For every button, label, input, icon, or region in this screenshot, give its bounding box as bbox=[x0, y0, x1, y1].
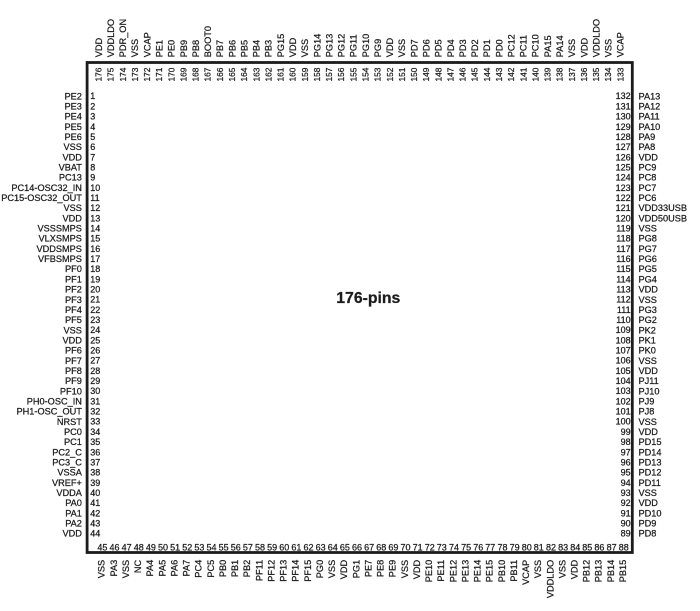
svg-text:PA13: PA13 bbox=[639, 91, 661, 101]
svg-text:13: 13 bbox=[90, 213, 100, 223]
svg-text:116: 116 bbox=[616, 254, 630, 264]
svg-text:PE10: PE10 bbox=[424, 560, 434, 582]
svg-text:PA12: PA12 bbox=[639, 102, 661, 112]
svg-text:PC14-OSC32_IN: PC14-OSC32_IN bbox=[11, 183, 81, 193]
svg-text:51: 51 bbox=[170, 543, 180, 553]
svg-text:24: 24 bbox=[90, 325, 100, 335]
svg-text:95: 95 bbox=[621, 468, 631, 478]
svg-text:VSS: VSS bbox=[639, 295, 657, 305]
svg-text:104: 104 bbox=[616, 376, 631, 386]
svg-text:PC5: PC5 bbox=[206, 560, 216, 578]
svg-text:10: 10 bbox=[90, 183, 100, 193]
svg-text:18: 18 bbox=[90, 264, 100, 274]
svg-text:137: 137 bbox=[567, 67, 577, 81]
svg-text:PD2: PD2 bbox=[470, 39, 480, 57]
svg-text:PB9: PB9 bbox=[179, 40, 189, 57]
svg-text:PE2: PE2 bbox=[65, 91, 82, 101]
svg-text:79: 79 bbox=[510, 543, 520, 553]
svg-text:VSS: VSS bbox=[327, 560, 337, 578]
svg-text:146: 146 bbox=[458, 67, 468, 81]
svg-text:117: 117 bbox=[616, 244, 630, 254]
svg-text:22: 22 bbox=[90, 305, 100, 315]
svg-text:PB4: PB4 bbox=[252, 40, 262, 57]
svg-text:PB3: PB3 bbox=[264, 40, 274, 57]
svg-text:115: 115 bbox=[616, 264, 630, 274]
svg-text:PK2: PK2 bbox=[639, 325, 656, 335]
svg-text:87: 87 bbox=[607, 543, 617, 553]
svg-text:56: 56 bbox=[231, 543, 241, 553]
svg-text:PF0: PF0 bbox=[65, 264, 82, 274]
svg-text:PB1: PB1 bbox=[230, 560, 240, 577]
svg-text:174: 174 bbox=[118, 67, 128, 81]
svg-text:PF2: PF2 bbox=[65, 285, 82, 295]
svg-text:PG5: PG5 bbox=[639, 264, 657, 274]
svg-text:41: 41 bbox=[90, 498, 100, 508]
svg-text:PC11: PC11 bbox=[519, 35, 529, 57]
svg-text:57: 57 bbox=[243, 543, 253, 553]
svg-text:131: 131 bbox=[616, 101, 631, 111]
svg-text:59: 59 bbox=[267, 543, 277, 553]
svg-text:PC0: PC0 bbox=[64, 427, 82, 437]
svg-text:PB5: PB5 bbox=[240, 40, 250, 57]
svg-text:PC7: PC7 bbox=[639, 183, 657, 193]
svg-text:76: 76 bbox=[473, 543, 483, 553]
svg-text:173: 173 bbox=[130, 67, 140, 81]
svg-text:120: 120 bbox=[616, 213, 631, 223]
svg-text:158: 158 bbox=[312, 67, 322, 81]
svg-text:VSS: VSS bbox=[300, 39, 310, 57]
svg-text:84: 84 bbox=[570, 543, 580, 553]
svg-text:80: 80 bbox=[522, 543, 532, 553]
svg-text:VDD: VDD bbox=[339, 559, 349, 579]
svg-text:161: 161 bbox=[276, 67, 286, 81]
svg-text:119: 119 bbox=[616, 224, 630, 234]
svg-text:PJ11: PJ11 bbox=[639, 376, 659, 386]
svg-text:PA1: PA1 bbox=[65, 508, 82, 518]
svg-text:PG4: PG4 bbox=[639, 274, 657, 284]
svg-text:66: 66 bbox=[352, 543, 362, 553]
svg-text:11: 11 bbox=[90, 193, 99, 203]
svg-text:123: 123 bbox=[616, 183, 631, 193]
svg-text:14: 14 bbox=[90, 224, 100, 234]
svg-text:PD6: PD6 bbox=[422, 39, 432, 57]
svg-text:100: 100 bbox=[616, 417, 631, 427]
svg-text:PF3: PF3 bbox=[65, 295, 82, 305]
svg-text:43: 43 bbox=[90, 519, 100, 529]
svg-text:PE6: PE6 bbox=[65, 132, 82, 142]
svg-text:PA8: PA8 bbox=[639, 142, 656, 152]
svg-text:176: 176 bbox=[94, 67, 104, 81]
svg-text:132: 132 bbox=[616, 91, 631, 101]
svg-text:VSS: VSS bbox=[639, 417, 657, 427]
svg-text:133: 133 bbox=[615, 67, 625, 81]
svg-text:125: 125 bbox=[616, 162, 631, 172]
svg-text:111: 111 bbox=[617, 305, 631, 315]
svg-text:PD7: PD7 bbox=[409, 39, 419, 57]
svg-text:25: 25 bbox=[90, 335, 100, 345]
svg-text:28: 28 bbox=[90, 366, 100, 376]
svg-text:PA4: PA4 bbox=[145, 560, 155, 577]
svg-text:PC6: PC6 bbox=[639, 193, 657, 203]
svg-text:71: 71 bbox=[413, 543, 423, 553]
svg-text:55: 55 bbox=[219, 543, 229, 553]
svg-text:61: 61 bbox=[291, 543, 301, 553]
svg-text:PE15: PE15 bbox=[485, 560, 495, 582]
svg-text:PF10: PF10 bbox=[60, 386, 82, 396]
svg-text:169: 169 bbox=[178, 67, 188, 81]
svg-text:PE5: PE5 bbox=[65, 122, 82, 132]
svg-text:PD14: PD14 bbox=[639, 447, 662, 457]
svg-text:165: 165 bbox=[227, 67, 237, 81]
svg-text:36: 36 bbox=[90, 447, 100, 457]
svg-text:VDD: VDD bbox=[62, 213, 82, 223]
svg-text:PB2: PB2 bbox=[242, 560, 252, 577]
svg-text:67: 67 bbox=[364, 543, 374, 553]
svg-text:PB11: PB11 bbox=[509, 560, 519, 582]
svg-text:PC13: PC13 bbox=[59, 173, 82, 183]
svg-text:VDD: VDD bbox=[639, 285, 659, 295]
svg-text:PF15: PF15 bbox=[303, 560, 313, 582]
svg-text:63: 63 bbox=[316, 543, 326, 553]
svg-text:92: 92 bbox=[621, 498, 631, 508]
svg-text:PD0: PD0 bbox=[494, 39, 504, 57]
svg-text:58: 58 bbox=[255, 543, 265, 553]
svg-text:108: 108 bbox=[616, 335, 631, 345]
svg-text:VDD50USB: VDD50USB bbox=[639, 213, 688, 223]
svg-text:96: 96 bbox=[621, 457, 631, 467]
svg-text:20: 20 bbox=[90, 285, 100, 295]
svg-text:VSS: VSS bbox=[604, 39, 614, 57]
svg-text:45: 45 bbox=[97, 543, 107, 553]
svg-text:85: 85 bbox=[582, 543, 592, 553]
svg-text:32: 32 bbox=[90, 407, 100, 417]
svg-text:PG7: PG7 bbox=[639, 244, 657, 254]
svg-text:PB6: PB6 bbox=[227, 40, 237, 57]
svg-text:153: 153 bbox=[373, 67, 383, 81]
svg-text:PK0: PK0 bbox=[639, 346, 656, 356]
svg-text:VSS: VSS bbox=[121, 560, 131, 578]
svg-text:PG12: PG12 bbox=[337, 34, 347, 58]
svg-text:VREF+: VREF+ bbox=[52, 478, 82, 488]
svg-text:PA6: PA6 bbox=[169, 560, 179, 577]
svg-text:154: 154 bbox=[361, 67, 371, 81]
svg-text:PD10: PD10 bbox=[639, 508, 662, 518]
svg-text:PA2: PA2 bbox=[65, 519, 82, 529]
svg-text:70: 70 bbox=[400, 543, 410, 553]
svg-text:136: 136 bbox=[579, 67, 589, 81]
svg-text:128: 128 bbox=[616, 132, 631, 142]
svg-text:PE12: PE12 bbox=[448, 560, 458, 582]
svg-text:48: 48 bbox=[134, 543, 144, 553]
svg-text:62: 62 bbox=[303, 543, 313, 553]
svg-text:121: 121 bbox=[616, 203, 631, 213]
svg-text:PG10: PG10 bbox=[361, 34, 371, 58]
svg-text:143: 143 bbox=[494, 67, 504, 81]
svg-text:150: 150 bbox=[409, 67, 419, 81]
svg-text:127: 127 bbox=[616, 142, 631, 152]
svg-text:PE9: PE9 bbox=[388, 560, 398, 577]
svg-text:PA14: PA14 bbox=[555, 35, 565, 57]
svg-text:PF8: PF8 bbox=[65, 366, 82, 376]
svg-text:VSS: VSS bbox=[639, 356, 657, 366]
svg-text:VDD: VDD bbox=[639, 498, 659, 508]
svg-text:175: 175 bbox=[106, 67, 116, 81]
svg-text:VDD: VDD bbox=[579, 37, 589, 57]
svg-text:47: 47 bbox=[122, 543, 132, 553]
svg-text:PG2: PG2 bbox=[639, 315, 657, 325]
svg-text:105: 105 bbox=[616, 366, 631, 376]
svg-text:VSS: VSS bbox=[64, 142, 82, 152]
svg-text:44: 44 bbox=[90, 529, 100, 539]
svg-text:VSS: VSS bbox=[533, 560, 543, 578]
svg-text:72: 72 bbox=[425, 543, 435, 553]
svg-text:3: 3 bbox=[90, 112, 95, 122]
svg-text:VSSA: VSSA bbox=[57, 468, 82, 478]
svg-text:160: 160 bbox=[288, 67, 298, 81]
svg-text:NRST: NRST bbox=[57, 417, 82, 427]
svg-text:148: 148 bbox=[433, 67, 443, 81]
svg-text:29: 29 bbox=[90, 376, 100, 386]
svg-text:PJ9: PJ9 bbox=[639, 397, 655, 407]
svg-text:PD9: PD9 bbox=[639, 519, 657, 529]
svg-text:VSS: VSS bbox=[64, 325, 82, 335]
svg-text:102: 102 bbox=[616, 396, 631, 406]
svg-text:30: 30 bbox=[90, 386, 100, 396]
svg-text:VSS: VSS bbox=[64, 203, 82, 213]
svg-text:PB12: PB12 bbox=[582, 560, 592, 582]
svg-text:1: 1 bbox=[90, 91, 95, 101]
svg-text:15: 15 bbox=[90, 234, 100, 244]
svg-text:VCAP: VCAP bbox=[521, 560, 531, 585]
svg-text:155: 155 bbox=[348, 67, 358, 81]
svg-text:VSS: VSS bbox=[397, 39, 407, 57]
svg-text:46: 46 bbox=[109, 543, 119, 553]
svg-text:114: 114 bbox=[616, 274, 630, 284]
svg-text:23: 23 bbox=[90, 315, 100, 325]
svg-text:PF13: PF13 bbox=[279, 560, 289, 582]
svg-text:VDD: VDD bbox=[570, 559, 580, 579]
svg-text:PJ8: PJ8 bbox=[639, 407, 655, 417]
svg-text:VSS: VSS bbox=[97, 560, 107, 578]
svg-text:VSS: VSS bbox=[567, 39, 577, 57]
svg-text:VDD: VDD bbox=[62, 152, 82, 162]
svg-text:PC15-OSC32_OUT: PC15-OSC32_OUT bbox=[1, 193, 82, 203]
svg-text:VDDLDO: VDDLDO bbox=[545, 560, 555, 598]
svg-text:PC2_C: PC2_C bbox=[52, 447, 82, 457]
svg-text:31: 31 bbox=[90, 396, 100, 406]
svg-text:176-pins: 176-pins bbox=[336, 290, 400, 307]
svg-text:PE7: PE7 bbox=[363, 560, 373, 577]
svg-text:VDD: VDD bbox=[94, 37, 104, 57]
svg-text:VDDLDO: VDDLDO bbox=[106, 19, 116, 57]
svg-text:PG3: PG3 bbox=[639, 305, 657, 315]
svg-text:164: 164 bbox=[239, 67, 249, 81]
svg-text:144: 144 bbox=[482, 67, 492, 81]
svg-text:VSS: VSS bbox=[639, 224, 657, 234]
svg-text:VDD: VDD bbox=[385, 37, 395, 57]
svg-text:27: 27 bbox=[90, 356, 100, 366]
svg-text:21: 21 bbox=[90, 295, 100, 305]
svg-text:16: 16 bbox=[90, 244, 100, 254]
svg-text:VSS: VSS bbox=[400, 560, 410, 578]
svg-text:49: 49 bbox=[146, 543, 156, 553]
svg-text:107: 107 bbox=[616, 346, 631, 356]
svg-text:PA5: PA5 bbox=[157, 560, 167, 577]
svg-text:PB15: PB15 bbox=[618, 560, 628, 582]
svg-text:138: 138 bbox=[555, 67, 565, 81]
svg-text:PG9: PG9 bbox=[373, 39, 383, 57]
svg-text:81: 81 bbox=[534, 543, 544, 553]
svg-text:PB8: PB8 bbox=[191, 40, 201, 57]
svg-text:103: 103 bbox=[616, 386, 631, 396]
svg-text:PD4: PD4 bbox=[446, 39, 456, 57]
svg-text:PC12: PC12 bbox=[507, 34, 517, 57]
svg-text:VSSSMPS: VSSSMPS bbox=[37, 224, 81, 234]
svg-text:77: 77 bbox=[485, 543, 495, 553]
svg-text:134: 134 bbox=[603, 67, 613, 81]
svg-text:53: 53 bbox=[194, 543, 204, 553]
svg-text:PF12: PF12 bbox=[266, 560, 276, 582]
svg-text:93: 93 bbox=[621, 488, 631, 498]
svg-text:172: 172 bbox=[142, 67, 152, 81]
svg-text:2: 2 bbox=[90, 101, 95, 111]
svg-text:149: 149 bbox=[421, 67, 431, 81]
svg-text:89: 89 bbox=[621, 529, 631, 539]
svg-text:130: 130 bbox=[616, 112, 631, 122]
svg-text:PA11: PA11 bbox=[639, 112, 660, 122]
svg-text:PB14: PB14 bbox=[606, 560, 616, 582]
svg-text:159: 159 bbox=[300, 67, 310, 81]
svg-text:VDD33USB: VDD33USB bbox=[639, 203, 688, 213]
svg-text:110: 110 bbox=[616, 315, 630, 325]
svg-text:PG6: PG6 bbox=[639, 254, 657, 264]
svg-text:PE0: PE0 bbox=[167, 40, 177, 57]
svg-text:VSS: VSS bbox=[557, 560, 567, 578]
svg-text:PG0: PG0 bbox=[315, 560, 325, 578]
svg-text:VSS: VSS bbox=[639, 488, 657, 498]
svg-text:VSS: VSS bbox=[130, 39, 140, 57]
svg-text:42: 42 bbox=[90, 508, 100, 518]
svg-text:152: 152 bbox=[385, 67, 395, 81]
svg-text:PF9: PF9 bbox=[65, 376, 82, 386]
svg-text:98: 98 bbox=[621, 437, 631, 447]
svg-text:142: 142 bbox=[506, 67, 516, 81]
svg-text:86: 86 bbox=[594, 543, 604, 553]
svg-text:PF7: PF7 bbox=[65, 356, 82, 366]
svg-text:54: 54 bbox=[206, 543, 216, 553]
svg-text:PA0: PA0 bbox=[65, 498, 82, 508]
svg-text:VCAP: VCAP bbox=[616, 32, 626, 57]
svg-text:106: 106 bbox=[616, 356, 631, 366]
svg-text:69: 69 bbox=[388, 543, 398, 553]
svg-text:PD8: PD8 bbox=[639, 529, 657, 539]
svg-text:PE1: PE1 bbox=[155, 40, 165, 57]
svg-text:PG8: PG8 bbox=[639, 234, 657, 244]
svg-text:PF11: PF11 bbox=[254, 560, 264, 581]
svg-text:162: 162 bbox=[263, 67, 273, 81]
svg-text:PB0: PB0 bbox=[218, 560, 228, 577]
svg-text:26: 26 bbox=[90, 346, 100, 356]
svg-text:VDD: VDD bbox=[639, 366, 659, 376]
svg-text:156: 156 bbox=[336, 67, 346, 81]
svg-text:VDDA: VDDA bbox=[56, 488, 82, 498]
svg-text:PC10: PC10 bbox=[531, 34, 541, 57]
svg-text:PA10: PA10 bbox=[639, 122, 661, 132]
svg-text:PC1: PC1 bbox=[64, 437, 82, 447]
svg-text:PF4: PF4 bbox=[65, 305, 82, 315]
svg-text:97: 97 bbox=[621, 447, 631, 457]
svg-text:147: 147 bbox=[446, 67, 456, 81]
svg-text:PE11: PE11 bbox=[436, 560, 446, 582]
svg-text:PB13: PB13 bbox=[594, 560, 604, 582]
svg-text:PD5: PD5 bbox=[434, 39, 444, 57]
svg-text:VDD: VDD bbox=[639, 427, 659, 437]
svg-text:PF14: PF14 bbox=[291, 560, 301, 582]
svg-text:VDDLDO: VDDLDO bbox=[591, 19, 601, 57]
svg-text:90: 90 bbox=[621, 519, 631, 529]
svg-text:171: 171 bbox=[154, 67, 164, 81]
svg-text:9: 9 bbox=[90, 173, 95, 183]
svg-text:VDD: VDD bbox=[62, 335, 82, 345]
svg-text:PD12: PD12 bbox=[639, 468, 662, 478]
svg-text:PH1-OSC_OUT: PH1-OSC_OUT bbox=[17, 407, 83, 417]
svg-text:PG13: PG13 bbox=[324, 34, 334, 58]
svg-text:PB7: PB7 bbox=[215, 40, 225, 57]
svg-text:52: 52 bbox=[182, 543, 192, 553]
svg-text:VDD: VDD bbox=[62, 529, 82, 539]
svg-text:109: 109 bbox=[616, 325, 631, 335]
svg-text:PG15: PG15 bbox=[276, 34, 286, 58]
svg-text:VCAP: VCAP bbox=[142, 32, 152, 57]
svg-text:NC: NC bbox=[133, 559, 143, 573]
svg-text:129: 129 bbox=[616, 122, 631, 132]
svg-text:37: 37 bbox=[90, 457, 100, 467]
svg-text:PC4: PC4 bbox=[194, 560, 204, 578]
svg-text:PD13: PD13 bbox=[639, 458, 662, 468]
svg-text:170: 170 bbox=[166, 67, 176, 81]
svg-text:122: 122 bbox=[616, 193, 631, 203]
svg-text:VDD: VDD bbox=[288, 37, 298, 57]
svg-text:19: 19 bbox=[90, 274, 100, 284]
svg-text:126: 126 bbox=[616, 152, 631, 162]
svg-text:33: 33 bbox=[90, 417, 100, 427]
svg-text:39: 39 bbox=[90, 478, 100, 488]
svg-text:PJ10: PJ10 bbox=[639, 386, 660, 396]
svg-text:PDR_ON: PDR_ON bbox=[118, 19, 128, 57]
svg-text:78: 78 bbox=[497, 543, 507, 553]
svg-text:168: 168 bbox=[191, 67, 201, 81]
svg-text:88: 88 bbox=[619, 543, 629, 553]
svg-text:12: 12 bbox=[90, 203, 100, 213]
svg-text:PA9: PA9 bbox=[639, 132, 656, 142]
svg-text:17: 17 bbox=[90, 254, 100, 264]
svg-text:7: 7 bbox=[90, 152, 95, 162]
svg-text:151: 151 bbox=[397, 67, 407, 81]
svg-text:PA7: PA7 bbox=[182, 560, 192, 577]
svg-text:83: 83 bbox=[558, 543, 568, 553]
svg-text:PF6: PF6 bbox=[65, 346, 82, 356]
svg-text:50: 50 bbox=[158, 543, 168, 553]
svg-text:PK1: PK1 bbox=[639, 335, 656, 345]
svg-text:PA15: PA15 bbox=[543, 35, 553, 57]
svg-text:PD1: PD1 bbox=[482, 39, 492, 57]
svg-text:82: 82 bbox=[546, 543, 556, 553]
svg-text:PG1: PG1 bbox=[351, 560, 361, 578]
svg-text:PG14: PG14 bbox=[312, 34, 322, 58]
svg-text:PC9: PC9 bbox=[639, 163, 657, 173]
svg-text:VLXSMPS: VLXSMPS bbox=[38, 234, 81, 244]
svg-text:PE14: PE14 bbox=[473, 560, 483, 582]
